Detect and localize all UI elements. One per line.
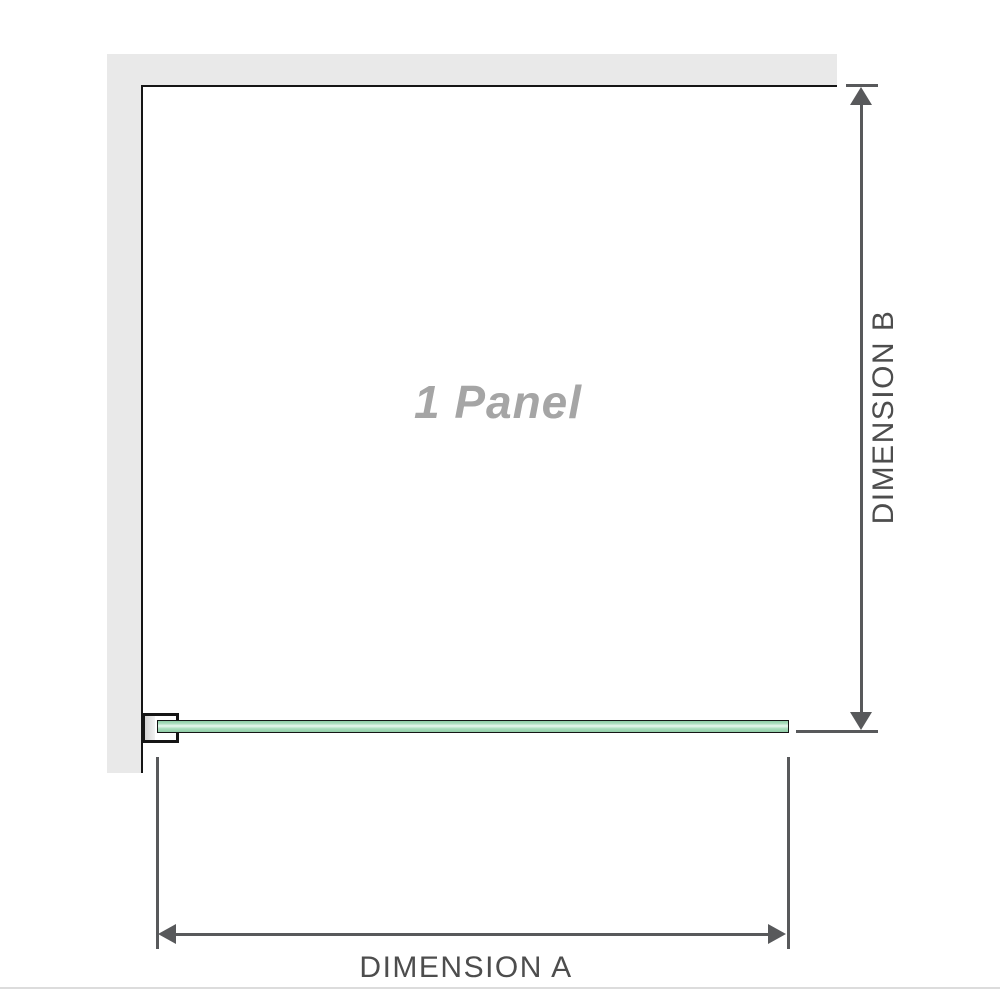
bottom-divider xyxy=(0,987,1000,989)
diagram-canvas: 1 Panel DIMENSION B DIMENSION A xyxy=(0,0,1000,1000)
bracket-shade xyxy=(145,716,155,740)
glass-panel xyxy=(157,720,789,733)
arrow-left-icon xyxy=(158,924,176,944)
panel-outline: 1 Panel xyxy=(141,85,837,773)
dim-b-bottom-tick xyxy=(796,730,878,733)
dim-a-ext-right xyxy=(787,757,790,949)
panel-label: 1 Panel xyxy=(143,375,837,429)
arrow-down-icon xyxy=(850,712,872,730)
dim-b-line xyxy=(860,95,863,720)
dimension-a-label: DIMENSION A xyxy=(359,951,572,985)
dim-a-ext-left xyxy=(156,757,159,949)
arrow-right-icon xyxy=(768,924,786,944)
arrow-up-icon xyxy=(850,87,872,105)
wall-top-strip xyxy=(107,54,837,85)
dimension-b-label: DIMENSION B xyxy=(867,310,901,525)
wall-left-strip xyxy=(107,54,141,773)
dim-a-line xyxy=(166,933,780,936)
